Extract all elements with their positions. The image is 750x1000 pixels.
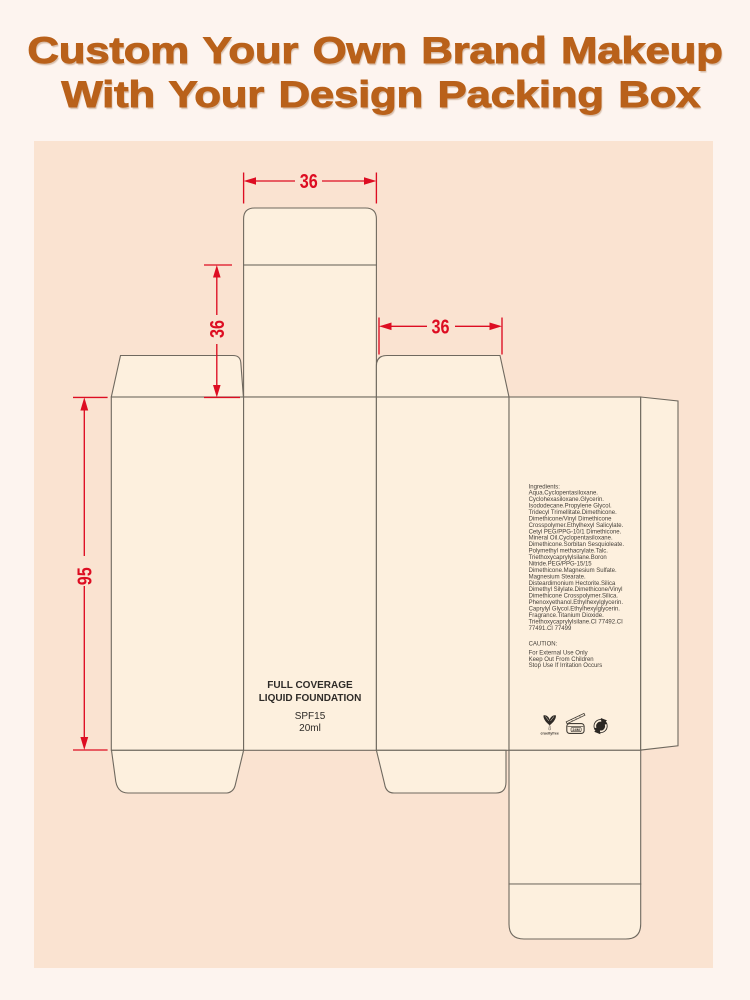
svg-text:Cetyl PEG/PPG-10/1 Dimethicone: Cetyl PEG/PPG-10/1 Dimethicone. xyxy=(529,529,622,535)
svg-text:Dimethicone.Magnesium Sulfate.: Dimethicone.Magnesium Sulfate. xyxy=(529,568,617,574)
svg-text:LIQUID FOUNDATION: LIQUID FOUNDATION xyxy=(259,693,362,704)
svg-text:Isododecane.Propylene Glycol.: Isododecane.Propylene Glycol. xyxy=(529,504,612,510)
svg-text:Dimethicone Crosspolymer.Silic: Dimethicone Crosspolymer.Silica. xyxy=(529,594,619,600)
svg-text:95: 95 xyxy=(75,567,97,585)
svg-text:crueltyfree: crueltyfree xyxy=(541,731,559,735)
svg-text:Triethoxycaprylylsilane.CI 774: Triethoxycaprylylsilane.CI 77492.CI xyxy=(529,619,623,625)
svg-text:Stop Use If Irritation Occurs: Stop Use If Irritation Occurs xyxy=(529,663,603,669)
svg-text:Ingredients:: Ingredients: xyxy=(529,484,561,490)
svg-text:Fragrance.Titanium Dioxide.: Fragrance.Titanium Dioxide. xyxy=(529,613,604,619)
svg-text:Phenoxyethanol.Ethylhexylglyce: Phenoxyethanol.Ethylhexylglycerin. xyxy=(529,600,624,606)
svg-text:Triethoxycaprylylsilane.Boron: Triethoxycaprylylsilane.Boron xyxy=(529,555,607,561)
svg-text:Tridecyl Trimellitate.Dimethic: Tridecyl Trimellitate.Dimethicone. xyxy=(529,510,617,516)
svg-text:FULL COVERAGE: FULL COVERAGE xyxy=(267,680,353,691)
svg-text:Caprylyl Glycol.Ethylhexylglyc: Caprylyl Glycol.Ethylhexylglycerin. xyxy=(529,607,621,613)
svg-text:Polymethyl methacrylate.Talc.: Polymethyl methacrylate.Talc. xyxy=(529,549,609,555)
svg-text:Crosspolymer.Ethylhexyl Salicy: Crosspolymer.Ethylhexyl Salicylate. xyxy=(529,523,624,529)
svg-text:CAUTION:: CAUTION: xyxy=(529,642,558,648)
svg-text:Dimethicone.Sorbitan Sesquiole: Dimethicone.Sorbitan Sesquioleate. xyxy=(529,542,625,548)
svg-text:For External Use Only: For External Use Only xyxy=(529,651,588,657)
svg-text:36: 36 xyxy=(432,317,450,339)
svg-text:77491.CI 77499: 77491.CI 77499 xyxy=(529,626,572,632)
svg-text:24M: 24M xyxy=(572,728,579,732)
svg-text:Dimethyl Silylate.Dimethicone/: Dimethyl Silylate.Dimethicone/Vinyl xyxy=(529,587,623,593)
svg-text:36: 36 xyxy=(300,171,318,193)
svg-text:Mineral Oil.Cyclopentasiloxane: Mineral Oil.Cyclopentasiloxane. xyxy=(529,536,613,542)
svg-text:Aqua.Cyclopentasiloxane.: Aqua.Cyclopentasiloxane. xyxy=(529,491,599,497)
svg-text:Magnesium Stearate.: Magnesium Stearate. xyxy=(529,574,586,580)
svg-text:Dimethicone/Vinyl Dimethicone: Dimethicone/Vinyl Dimethicone xyxy=(529,517,613,523)
svg-text:Cyclohexasiloxane.Glycerin.: Cyclohexasiloxane.Glycerin. xyxy=(529,497,605,503)
svg-text:20ml: 20ml xyxy=(299,723,321,734)
svg-text:Nitride.PEG/PPG-15/15: Nitride.PEG/PPG-15/15 xyxy=(529,562,593,568)
svg-text:Disteardimonium Hectorite.Sili: Disteardimonium Hectorite.Silica xyxy=(529,581,616,587)
svg-text:SPF15: SPF15 xyxy=(295,711,326,722)
svg-text:36: 36 xyxy=(207,320,229,338)
svg-text:Keep Out From Children: Keep Out From Children xyxy=(529,657,594,663)
